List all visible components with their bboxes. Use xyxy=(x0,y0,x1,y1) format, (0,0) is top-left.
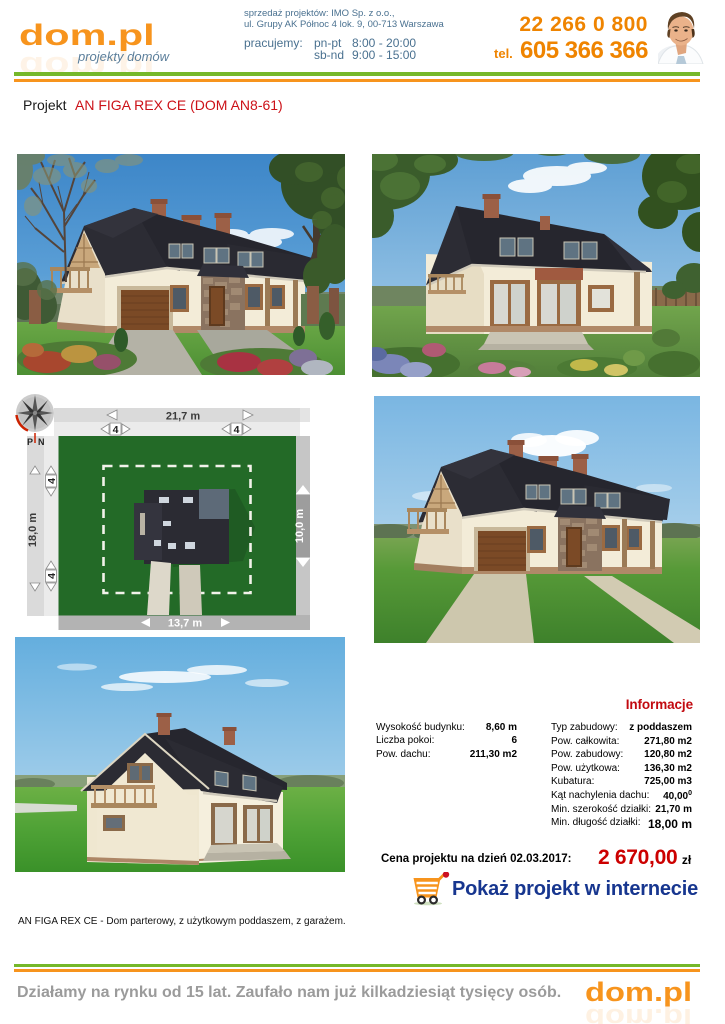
svg-text:13,7 m: 13,7 m xyxy=(168,618,202,630)
svg-text:10,0 m: 10,0 m xyxy=(294,509,306,543)
svg-text:N: N xyxy=(38,437,45,447)
svg-text:P: P xyxy=(27,437,33,447)
svg-text:21,7 m: 21,7 m xyxy=(166,411,200,423)
svg-text:18,0 m: 18,0 m xyxy=(27,513,39,547)
svg-text:4: 4 xyxy=(46,478,58,484)
svg-text:4: 4 xyxy=(113,424,119,436)
svg-text:4: 4 xyxy=(234,424,240,436)
svg-text:4: 4 xyxy=(46,573,58,579)
